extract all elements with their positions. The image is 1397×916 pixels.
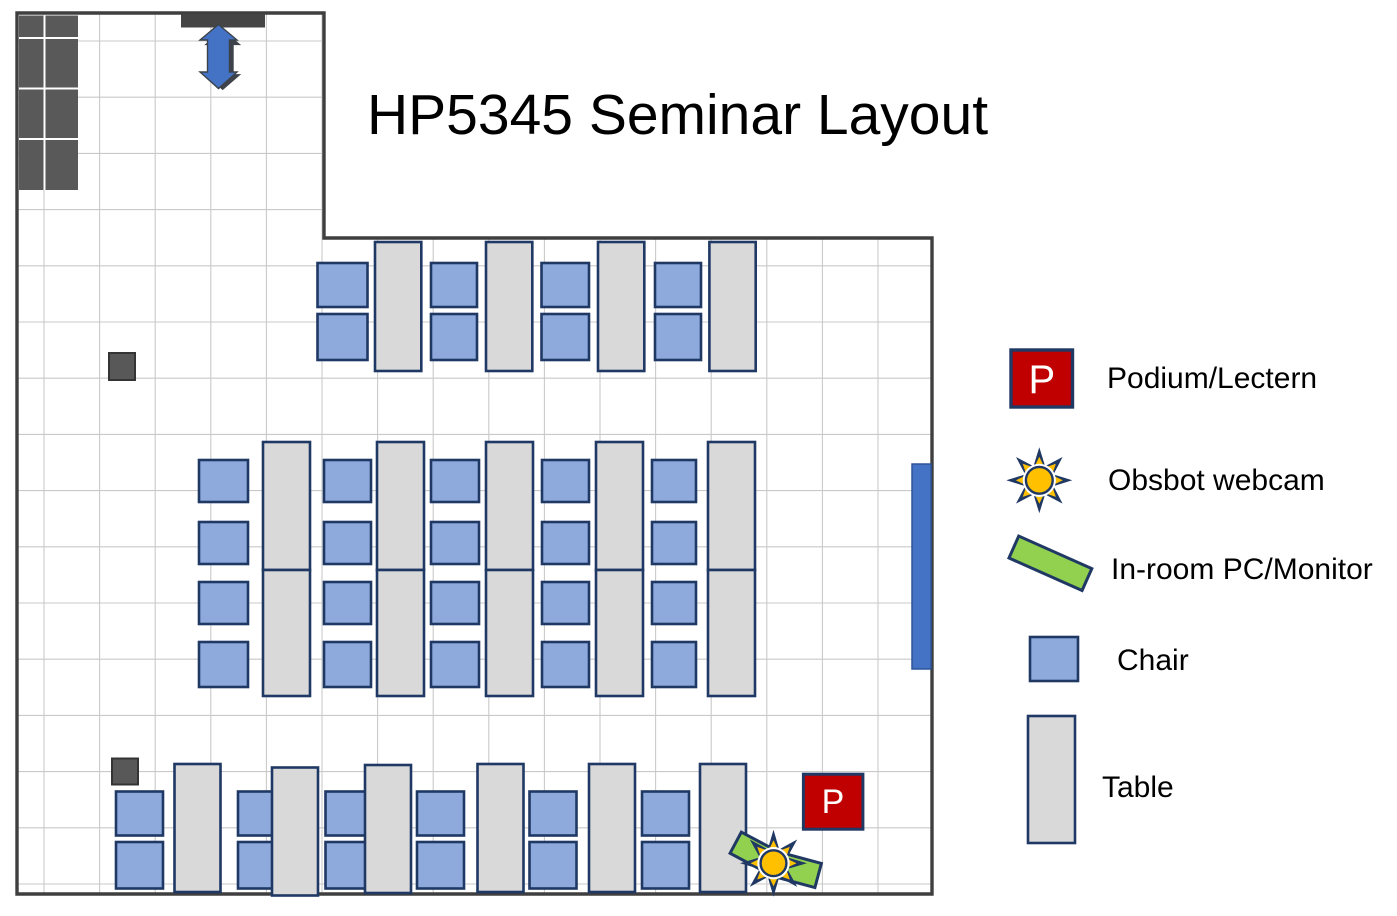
svg-text:Obsbot webcam: Obsbot webcam — [1108, 464, 1325, 497]
svg-text:P: P — [1028, 358, 1055, 402]
svg-text:In-room PC/Monitor: In-room PC/Monitor — [1111, 553, 1373, 586]
svg-text:Podium/Lectern: Podium/Lectern — [1107, 362, 1317, 395]
svg-text:P: P — [822, 783, 845, 821]
svg-text:HP5345 Seminar Layout: HP5345 Seminar Layout — [367, 83, 988, 147]
svg-text:Table: Table — [1102, 771, 1174, 804]
svg-text:Chair: Chair — [1117, 644, 1189, 677]
